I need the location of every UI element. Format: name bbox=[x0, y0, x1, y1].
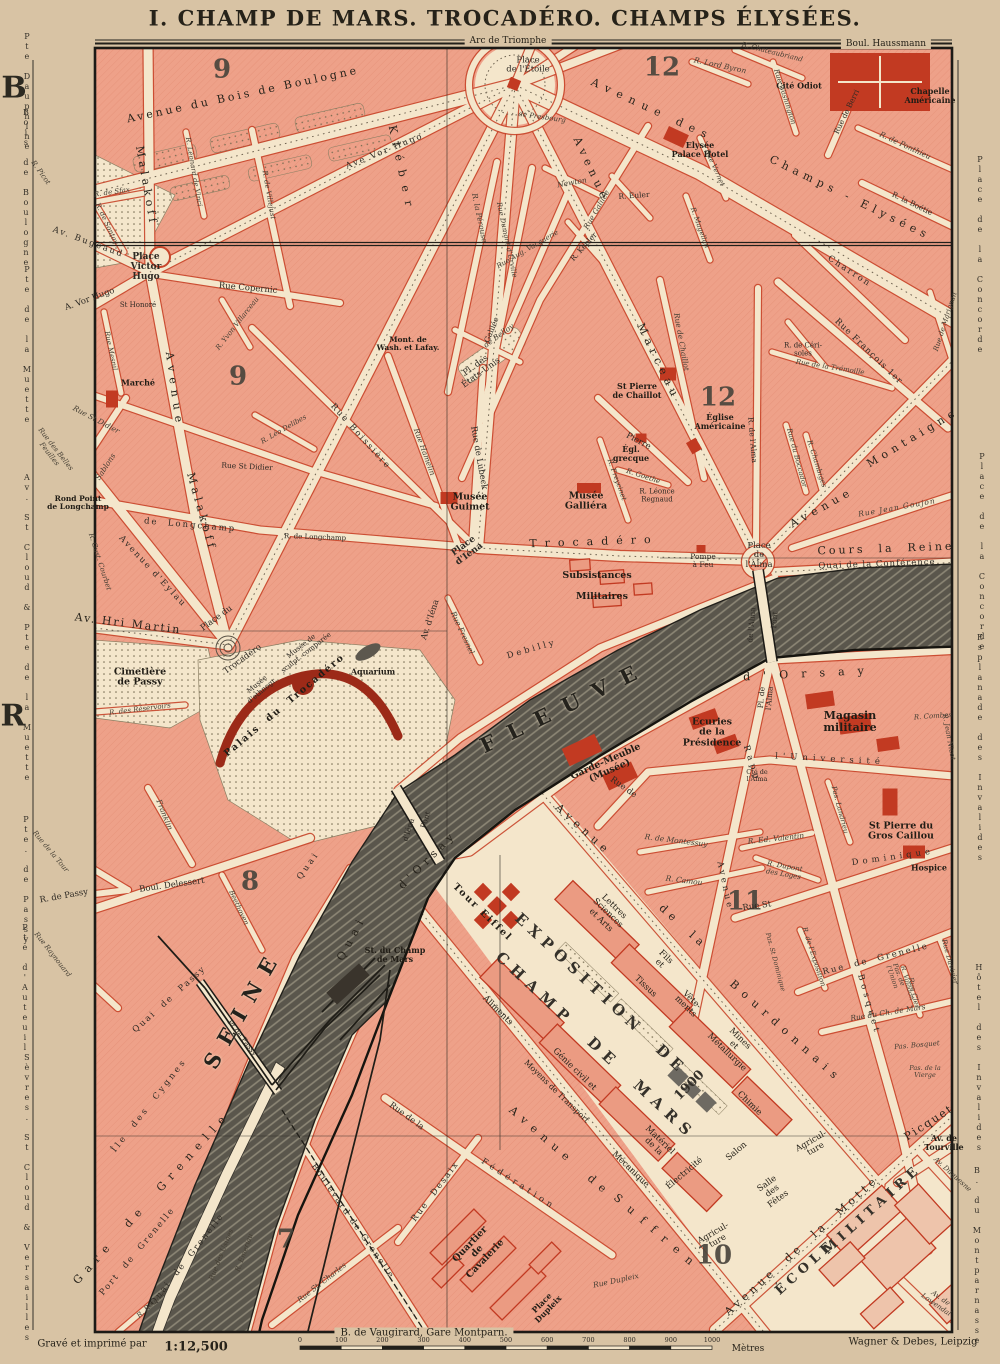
scale-tick: 500 bbox=[500, 1336, 512, 1344]
scale-tick: 800 bbox=[623, 1336, 635, 1344]
scale-tick: 400 bbox=[459, 1336, 471, 1344]
scale-ratio-label: 1:12,500 bbox=[164, 1340, 228, 1355]
scale-tick: 100 bbox=[335, 1336, 347, 1344]
boul-haussmann-margin-label: Boul. Haussmann bbox=[841, 39, 931, 49]
map-canvas bbox=[0, 0, 1000, 1364]
metres-unit-label: Mètres bbox=[732, 1344, 764, 1354]
scale-tick: 300 bbox=[417, 1336, 429, 1344]
scale-tick: 700 bbox=[582, 1336, 594, 1344]
arc-de-triomphe-margin-label: Arc de Triomphe bbox=[465, 36, 552, 46]
scale-tick: 200 bbox=[376, 1336, 388, 1344]
scale-tick: 1000 bbox=[704, 1336, 721, 1344]
map-page: I. CHAMP DE MARS. TROCADÉRO. CHAMPS ÉLYS… bbox=[0, 0, 1000, 1364]
scale-tick: 600 bbox=[541, 1336, 553, 1344]
scale-tick: 0 bbox=[298, 1336, 302, 1344]
scale-tick: 900 bbox=[665, 1336, 677, 1344]
publisher-label: Wagner & Debes, Leipzig bbox=[849, 1337, 978, 1348]
map-title: I. CHAMP DE MARS. TROCADÉRO. CHAMPS ÉLYS… bbox=[149, 6, 862, 31]
engraver-label: Gravé et imprimé par bbox=[37, 1339, 146, 1350]
